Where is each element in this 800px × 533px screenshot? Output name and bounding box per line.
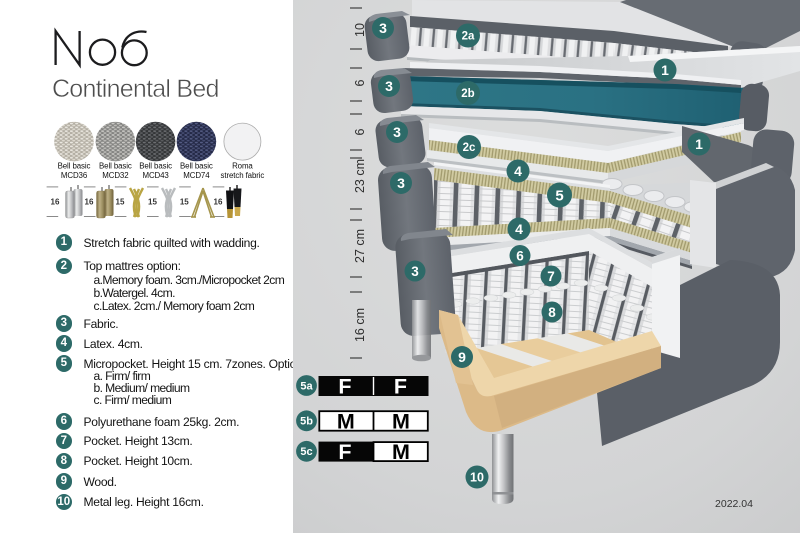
svg-text:MCD74: MCD74 [183,171,210,180]
svg-text:1: 1 [695,136,703,152]
svg-text:Bell basic: Bell basic [99,162,132,171]
svg-text:10: 10 [470,471,484,485]
svg-text:1: 1 [661,62,669,78]
svg-text:4: 4 [515,221,523,237]
svg-text:F: F [338,440,351,464]
svg-text:2a: 2a [462,31,475,43]
svg-text:M: M [392,440,410,464]
svg-text:3: 3 [397,175,405,191]
svg-text:Roma: Roma [232,162,253,171]
svg-text:MCD36: MCD36 [61,171,88,180]
svg-text:15: 15 [148,198,157,207]
svg-text:Bell basic: Bell basic [139,162,172,171]
svg-text:2c: 2c [463,142,476,154]
svg-text:16: 16 [214,198,223,207]
svg-text:27 cm: 27 cm [353,229,367,263]
svg-text:7: 7 [547,269,555,284]
svg-text:5: 5 [555,187,563,204]
svg-text:5c: 5c [300,446,312,458]
svg-text:MCD43: MCD43 [142,171,169,180]
svg-text:6: 6 [353,128,367,135]
svg-text:6: 6 [516,248,524,263]
svg-text:Bell basic: Bell basic [180,162,213,171]
svg-text:8: 8 [548,305,556,320]
svg-text:15: 15 [116,198,125,207]
svg-text:15: 15 [180,198,189,207]
svg-text:4: 4 [514,163,522,179]
svg-text:2022.04: 2022.04 [715,498,753,510]
svg-text:3: 3 [411,264,419,279]
svg-text:5a: 5a [300,380,313,392]
svg-text:M: M [337,409,355,433]
svg-text:Bell basic: Bell basic [58,162,91,171]
svg-text:MCD32: MCD32 [102,171,128,180]
svg-text:10: 10 [353,23,367,37]
svg-text:3: 3 [385,78,393,94]
svg-text:16: 16 [85,198,94,207]
svg-text:3: 3 [379,20,387,36]
svg-text:6: 6 [353,79,367,86]
svg-text:F: F [394,375,407,399]
svg-text:23 cm: 23 cm [353,159,367,193]
svg-text:2b: 2b [461,88,474,100]
svg-text:3: 3 [393,124,401,140]
svg-text:16: 16 [51,198,60,207]
svg-text:M: M [392,409,410,433]
svg-text:9: 9 [458,349,466,365]
svg-text:5b: 5b [300,416,313,428]
svg-text:F: F [338,375,351,399]
svg-text:16 cm: 16 cm [353,308,367,342]
svg-text:stretch fabric: stretch fabric [221,171,265,180]
